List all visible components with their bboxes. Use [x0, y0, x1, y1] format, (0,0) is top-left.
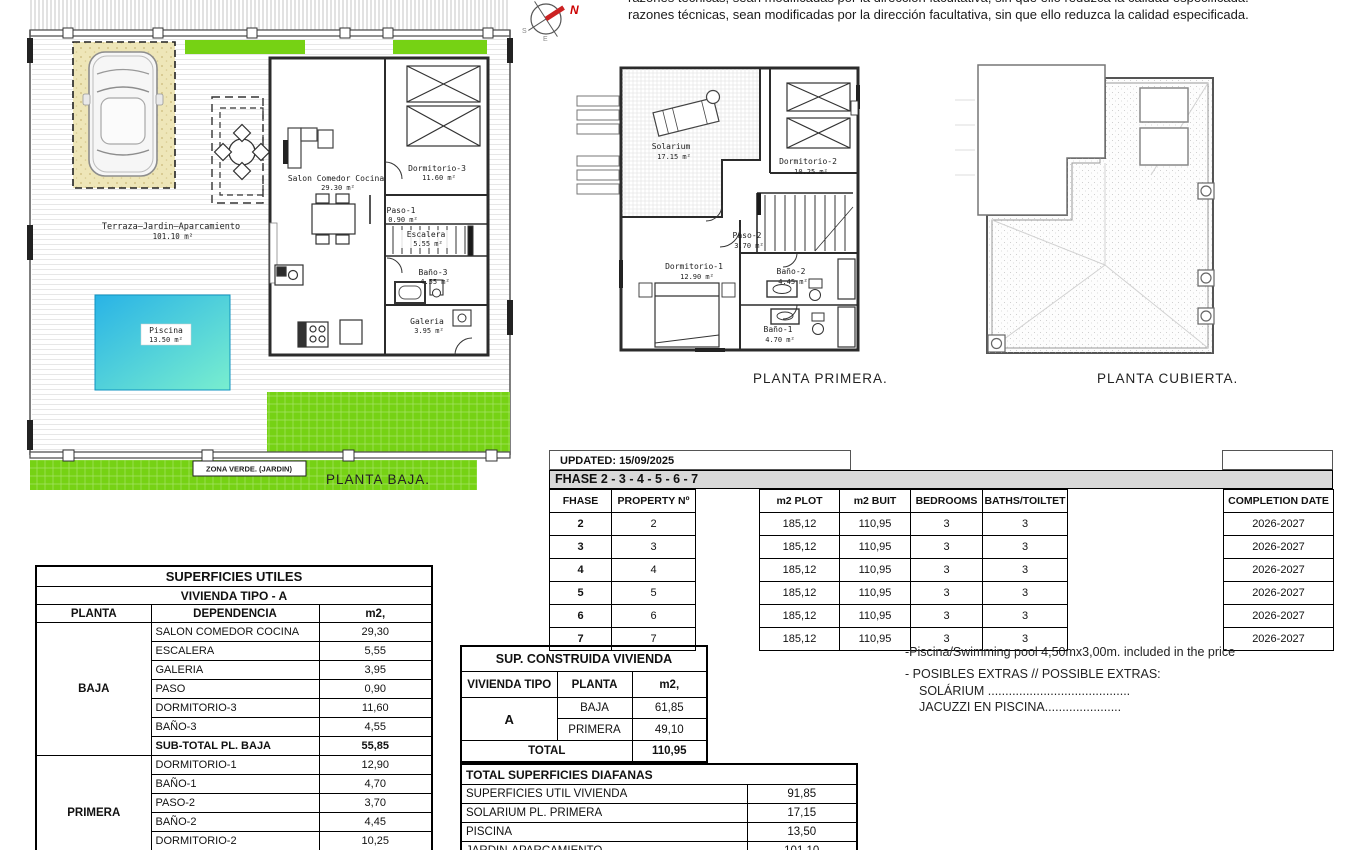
top-note: razones técnicas, sean modificadas por l…: [628, 7, 1249, 22]
cell: 10,25: [319, 832, 432, 850]
room-label: Galeria: [410, 317, 444, 326]
cell: BAÑO-1: [151, 775, 319, 794]
cell: BAÑO-2: [151, 813, 319, 832]
cell: 101,10: [747, 842, 857, 850]
cell: 2026-2027: [1224, 513, 1334, 536]
column-header: VIVIENDA TIPO: [461, 672, 557, 698]
cell: ESCALERA: [151, 642, 319, 661]
table-row: PRIMERA DORMITORIO-1 12,90: [36, 756, 432, 775]
cell: 3: [983, 513, 1068, 536]
phase-row: 4 4 185,12 110,95 3 3 2026-2027: [550, 559, 1334, 582]
cell: 11,60: [319, 699, 432, 718]
gap-cell: [696, 605, 760, 628]
cell: 3: [983, 582, 1068, 605]
cell: DORMITORIO-2: [151, 832, 319, 850]
cell: PISCINA: [461, 823, 747, 842]
cell: 55,85: [319, 737, 432, 756]
cell: SALON COMEDOR COCINA: [151, 623, 319, 642]
room-label: Dormitorio-3: [408, 164, 466, 173]
room-area: 0.90 m²: [388, 216, 418, 224]
room-label: Baño-1: [764, 325, 793, 334]
cell: 12,90: [319, 756, 432, 775]
column-header: DEPENDENCIA: [151, 605, 319, 623]
svg-text:ZONA VERDE. (JARDIN): ZONA VERDE. (JARDIN): [206, 465, 292, 474]
cell: 3: [983, 536, 1068, 559]
cell: 2: [612, 513, 696, 536]
column-header: BEDROOMS: [911, 490, 983, 513]
cell: 110,95: [840, 536, 911, 559]
gap-cell: [1068, 490, 1224, 513]
column-header: PROPERTY Nº: [612, 490, 696, 513]
cell: 110,95: [840, 605, 911, 628]
empty-cell: [1222, 450, 1333, 470]
cell: SUPERFICIES UTIL VIVIENDA: [461, 785, 747, 804]
vivienda-tipo: A: [461, 698, 557, 741]
room-label: Terraza–Jardin–Aparcamiento: [102, 222, 240, 232]
cell: 17,15: [747, 804, 857, 823]
table-row: A BAJA 61,85: [461, 698, 707, 719]
total-label: TOTAL: [461, 741, 632, 762]
column-header: COMPLETION DATE: [1224, 490, 1334, 513]
cell: 49,10: [632, 719, 707, 741]
phase-title-bar: FHASE 2 - 3 - 4 - 5 - 6 - 7: [549, 470, 1333, 489]
cell: 61,85: [632, 698, 707, 719]
gap-cell: [696, 490, 760, 513]
room-label: Dormitorio-1: [665, 262, 723, 271]
plan-cubierta-caption: PLANTA CUBIERTA.: [1097, 371, 1238, 386]
car-icon: [83, 52, 163, 176]
table-row: PISCINA13,50: [461, 823, 857, 842]
cell: 29,30: [319, 623, 432, 642]
washer-icon: [453, 310, 471, 326]
cell: 3: [911, 559, 983, 582]
plan-primera: Solarium 17.15 m² Dormitorio-2 10.25 m² …: [575, 55, 885, 395]
cell: 2026-2027: [1224, 628, 1334, 651]
table-title: TOTAL SUPERFICIES DIAFANAS: [461, 764, 857, 785]
plan-baja-caption: PLANTA BAJA.: [326, 472, 430, 487]
cell: 4: [612, 559, 696, 582]
table-row: SUPERFICIES UTIL VIVIENDA91,85: [461, 785, 857, 804]
gap-cell: [696, 513, 760, 536]
table-title: SUPERFICIES UTILES: [36, 566, 432, 587]
room-label: Solarium: [652, 142, 691, 151]
room-area: 10.25 m²: [794, 168, 828, 176]
cell: PASO: [151, 680, 319, 699]
table-row: SOLARIUM PL. PRIMERA17,15: [461, 804, 857, 823]
room-label: Paso-1: [387, 206, 416, 215]
column-header: PLANTA: [557, 672, 632, 698]
cell: 110,95: [840, 582, 911, 605]
cell: 3: [550, 536, 612, 559]
room-area: 12.90 m²: [680, 273, 714, 281]
bed-icon: [407, 66, 480, 146]
cell: 0,90: [319, 680, 432, 699]
louvers: [577, 96, 619, 194]
cell: BAÑO-3: [151, 718, 319, 737]
cell: 110,95: [840, 559, 911, 582]
cell: 3: [983, 605, 1068, 628]
table-row: SUP. CONSTRUIDA VIVIENDA: [461, 646, 707, 672]
column-header: m2,: [632, 672, 707, 698]
cell: 6: [612, 605, 696, 628]
cell: 3: [911, 582, 983, 605]
room-label: Baño-2: [777, 267, 806, 276]
cell: BAJA: [557, 698, 632, 719]
zona-verde-label: ZONA VERDE. (JARDIN): [193, 461, 306, 476]
updated-cell: UPDATED: 15/09/2025: [549, 450, 851, 470]
cell: 3,95: [319, 661, 432, 680]
column-header: m2 PLOT: [760, 490, 840, 513]
table-subtitle: VIVIENDA TIPO - A: [36, 587, 432, 605]
plan-primera-caption: PLANTA PRIMERA.: [753, 371, 888, 386]
top-wall: [30, 30, 510, 36]
gap-cell: [696, 559, 760, 582]
cell: DORMITORIO-3: [151, 699, 319, 718]
bottom-wall: [30, 452, 510, 458]
tv-icon: [283, 140, 288, 164]
planta-label: BAJA: [36, 623, 151, 756]
room-area: 4.55 m²: [420, 278, 450, 286]
solarium-table-icon: [707, 91, 720, 104]
cell: 3: [911, 513, 983, 536]
room-label: Baño-3: [419, 268, 448, 277]
cell: PRIMERA: [557, 719, 632, 741]
compass-east-label: E: [543, 36, 548, 42]
table-row: TOTAL SUPERFICIES DIAFANAS: [461, 764, 857, 785]
diafanas-table: TOTAL SUPERFICIES DIAFANAS SUPERFICIES U…: [460, 763, 858, 850]
column-header: PLANTA: [36, 605, 151, 623]
cell: 3: [911, 605, 983, 628]
gap-cell: [1068, 605, 1224, 628]
phase-header-row: FHASE PROPERTY Nº m2 PLOT m2 BUIT BEDROO…: [550, 490, 1334, 513]
cell: 185,12: [760, 605, 840, 628]
room-area: 101.10 m²: [153, 232, 194, 241]
cell: 91,85: [747, 785, 857, 804]
phase-row: 6 6 185,12 110,95 3 3 2026-2027: [550, 605, 1334, 628]
table-row: JARDIN-APARCAMIENTO101,10: [461, 842, 857, 850]
room-area: 17.15 m²: [657, 153, 691, 161]
cell: 2: [550, 513, 612, 536]
gap-cell: [696, 536, 760, 559]
note-line: SOLÁRIUM ...............................…: [919, 684, 1130, 698]
cell: 110,95: [840, 513, 911, 536]
total-row: TOTAL 110,95: [461, 741, 707, 762]
cell: 2026-2027: [1224, 559, 1334, 582]
cell: 6: [550, 605, 612, 628]
table-row: VIVIENDA TIPO PLANTA m2,: [461, 672, 707, 698]
cell: 13,50: [747, 823, 857, 842]
column-header: BATHS/TOILTET: [983, 490, 1068, 513]
cell: 185,12: [760, 559, 840, 582]
parking-area: [73, 42, 175, 188]
cell: 5,55: [319, 642, 432, 661]
plan-cubierta: [955, 55, 1255, 395]
cell: 3,70: [319, 794, 432, 813]
table-row: BAJA SALON COMEDOR COCINA 29,30: [36, 623, 432, 642]
room-label: Paso-2: [733, 231, 762, 240]
table-row: SUPERFICIES UTILES: [36, 566, 432, 587]
note-line: -Piscina/Swimming pool 4,50mx3,00m. incl…: [905, 645, 1235, 659]
cell: JARDIN-APARCAMIENTO: [461, 842, 747, 850]
cell: 110,95: [840, 628, 911, 651]
room-area: 4.45 m²: [778, 278, 808, 286]
gap-cell: [1068, 513, 1224, 536]
cell: 5: [612, 582, 696, 605]
cell: 185,12: [760, 628, 840, 651]
cell: SOLARIUM PL. PRIMERA: [461, 804, 747, 823]
cell: 2026-2027: [1224, 536, 1334, 559]
column-header: m2,: [319, 605, 432, 623]
room-area: 3.70 m²: [734, 242, 764, 250]
phase-row: 5 5 185,12 110,95 3 3 2026-2027: [550, 582, 1334, 605]
cell: SUB-TOTAL PL. BAJA: [151, 737, 319, 756]
table-row: PLANTA DEPENDENCIA m2,: [36, 605, 432, 623]
room-area: 4.70 m²: [765, 336, 795, 344]
planta-label: PRIMERA: [36, 756, 151, 850]
gap-cell: [1068, 582, 1224, 605]
compass-north-label: N: [570, 3, 579, 17]
cell: 185,12: [760, 513, 840, 536]
gap-cell: [1068, 559, 1224, 582]
top-note-clipped: razones técnicas, sean modificadas por l…: [628, 0, 1328, 7]
table-title: SUP. CONSTRUIDA VIVIENDA: [461, 646, 707, 672]
plan-sheet: razones técnicas, sean modificadas por l…: [0, 0, 1360, 850]
total-value: 110,95: [632, 741, 707, 762]
cell: 5: [550, 582, 612, 605]
room-area: 5.55 m²: [413, 240, 443, 248]
room-area: 3.95 m²: [414, 327, 444, 335]
note-line: - POSIBLES EXTRAS // POSSIBLE EXTRAS:: [905, 667, 1161, 681]
cell: 3: [983, 559, 1068, 582]
table-row: VIVIENDA TIPO - A: [36, 587, 432, 605]
phase-row: 2 2 185,12 110,95 3 3 2026-2027: [550, 513, 1334, 536]
cell: DORMITORIO-1: [151, 756, 319, 775]
pool: Piscina 13.50 m²: [95, 295, 230, 390]
room-area: 13.50 m²: [149, 336, 183, 344]
column-header: FHASE: [550, 490, 612, 513]
cell: 185,12: [760, 536, 840, 559]
column-header: m2 BUIT: [840, 490, 911, 513]
cell: PASO-2: [151, 794, 319, 813]
cell: 2026-2027: [1224, 582, 1334, 605]
room-label: Salon Comedor Cocina: [288, 174, 385, 183]
cell: 4: [550, 559, 612, 582]
gap-cell: [1068, 536, 1224, 559]
house-ground-floor: Salon Comedor Cocina 29.30 m² Dormitorio…: [270, 58, 488, 355]
phase-row: 3 3 185,12 110,95 3 3 2026-2027: [550, 536, 1334, 559]
room-label: Dormitorio-2: [779, 157, 837, 166]
cell: 4,55: [319, 718, 432, 737]
sup-construida-table: SUP. CONSTRUIDA VIVIENDA VIVIENDA TIPO P…: [460, 645, 708, 763]
cell: 4,70: [319, 775, 432, 794]
plan-baja: Terraza–Jardin–Aparcamiento 101.10 m² Pi…: [25, 0, 525, 500]
hatch-strip: [30, 0, 510, 30]
cell: 2026-2027: [1224, 605, 1334, 628]
gap-cell: [696, 582, 760, 605]
superficies-utiles-table: SUPERFICIES UTILES VIVIENDA TIPO - A PLA…: [35, 565, 433, 850]
room-area: 29.30 m²: [321, 184, 355, 192]
room-area: 11.60 m²: [422, 174, 456, 182]
cell: 4,45: [319, 813, 432, 832]
note-line: JACUZZI EN PISCINA......................: [919, 700, 1121, 714]
cell: 185,12: [760, 582, 840, 605]
cell: 3: [612, 536, 696, 559]
phase-table: FHASE PROPERTY Nº m2 PLOT m2 BUIT BEDROO…: [549, 489, 1334, 651]
room-label: Piscina: [149, 326, 183, 335]
neighbor-lines: [955, 100, 975, 175]
cell: 3: [911, 536, 983, 559]
cell: GALERIA: [151, 661, 319, 680]
room-label: Escalera: [407, 230, 446, 239]
